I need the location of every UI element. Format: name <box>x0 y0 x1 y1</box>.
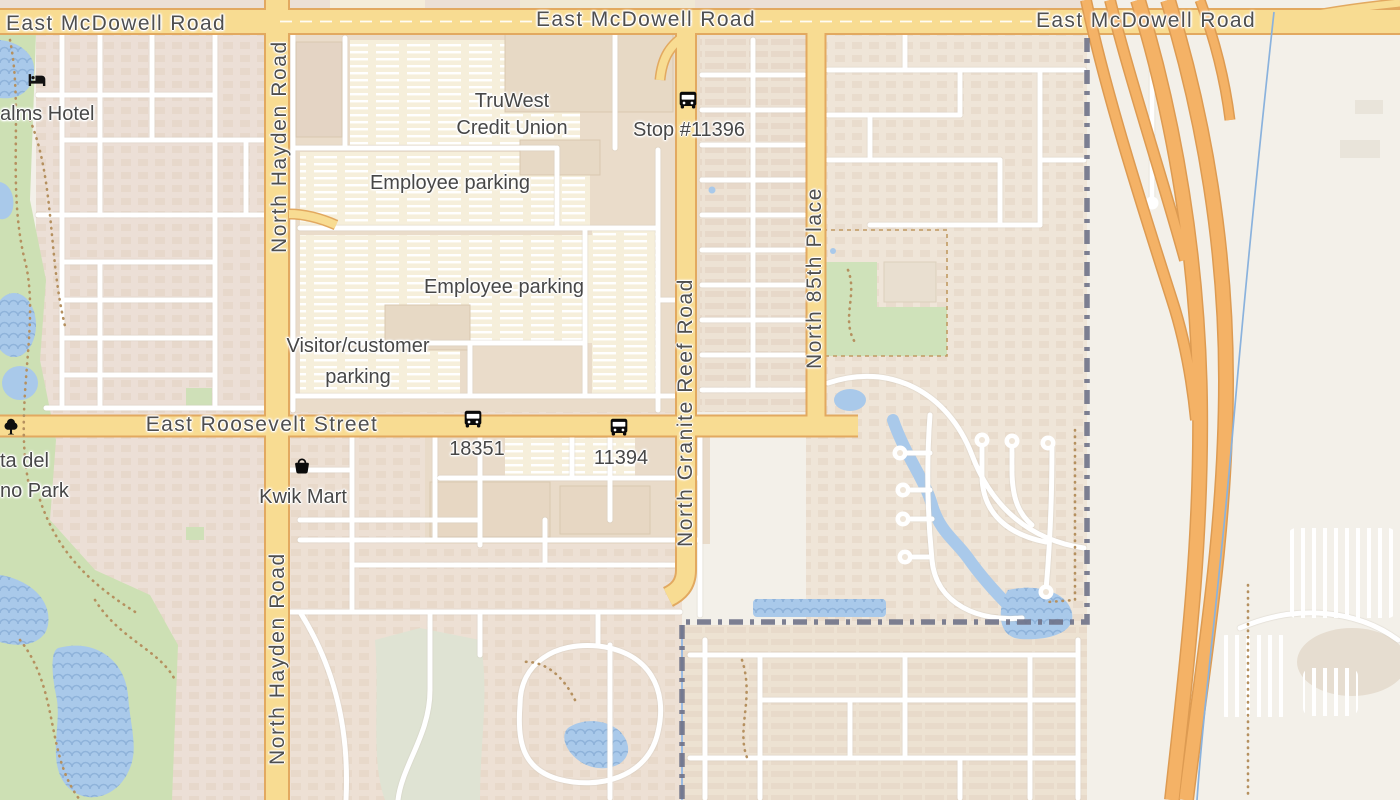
label-stop-18351: 18351 <box>449 434 505 464</box>
label-stop-11394: 11394 <box>594 443 648 473</box>
road-label-granite-reef: North Granite Reef Road <box>674 278 698 547</box>
hotel-icon <box>28 71 47 90</box>
tree-icon <box>2 418 21 437</box>
label-visitor-parking-line1: Visitor/customer <box>286 331 429 361</box>
bus-stop-icon[interactable] <box>610 418 629 437</box>
map-canvas[interactable]: East McDowell Road East McDowell Road Ea… <box>0 0 1400 800</box>
road-label-mcdowell-east: East McDowell Road <box>1036 9 1256 33</box>
label-kwik-mart: Kwik Mart <box>259 482 347 512</box>
road-label-mcdowell-west: East McDowell Road <box>6 12 226 36</box>
label-employee-parking-south: Employee parking <box>424 272 584 302</box>
road-label-85th-place: North 85th Place <box>803 187 827 369</box>
label-park-line1: ta del <box>0 446 49 476</box>
label-truwest-line2: Credit Union <box>456 113 567 143</box>
label-stop-11396: Stop #11396 <box>633 115 745 145</box>
bus-stop-icon[interactable] <box>464 410 483 429</box>
road-label-roosevelt: East Roosevelt Street <box>146 413 379 437</box>
shop-basket-icon <box>293 457 312 476</box>
label-truwest-line1: TruWest <box>475 86 549 116</box>
bus-stop-icon[interactable] <box>679 91 698 110</box>
label-park-line2: no Park <box>0 476 69 506</box>
label-visitor-parking-line2: parking <box>325 362 391 392</box>
road-label-mcdowell-center: East McDowell Road <box>536 8 756 32</box>
road-label-hayden-south: North Hayden Road <box>266 552 290 765</box>
label-palms-hotel: alms Hotel <box>0 99 94 129</box>
label-employee-parking-north: Employee parking <box>370 168 530 198</box>
road-label-hayden-north: North Hayden Road <box>268 40 292 253</box>
